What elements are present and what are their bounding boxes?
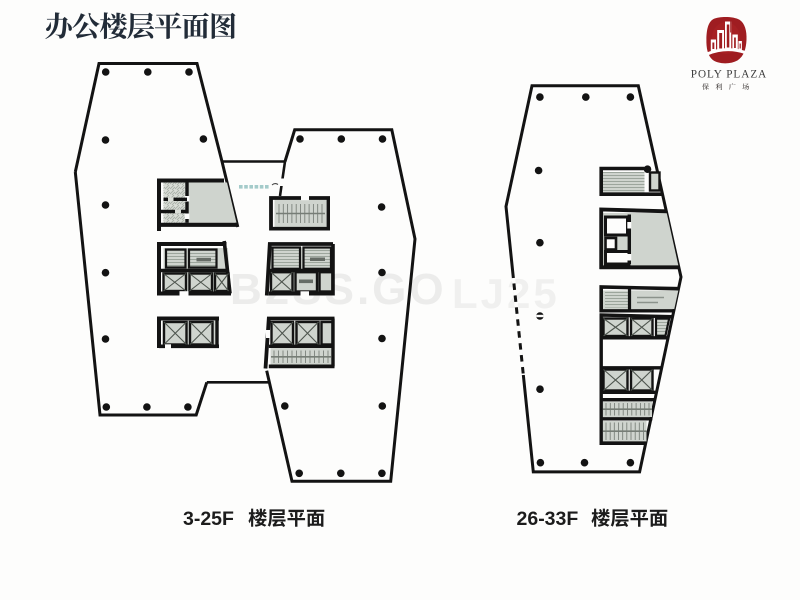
svg-text:3-25F: 3-25F (183, 508, 234, 530)
svg-text:26-33F: 26-33F (517, 508, 579, 530)
svg-text:LJ25: LJ25 (452, 270, 560, 317)
svg-text:B2SS.GO: B2SS.GO (230, 265, 447, 314)
svg-text:POLY PLAZA: POLY PLAZA (691, 69, 768, 81)
